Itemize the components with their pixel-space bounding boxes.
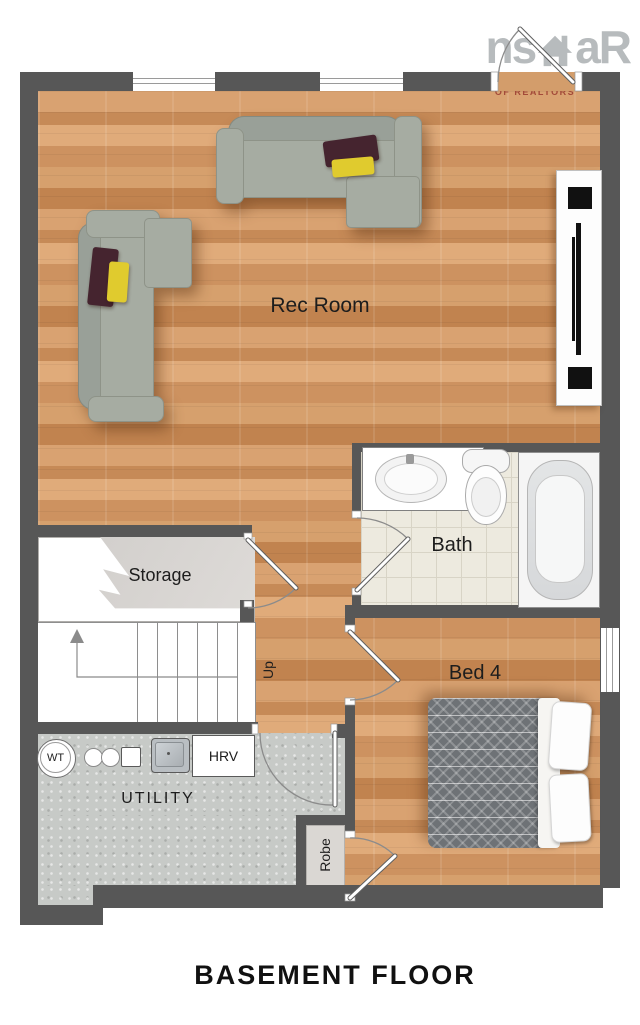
tv-unit: [556, 170, 602, 406]
bath-label: Bath: [402, 534, 502, 557]
logo-text-ar: aR: [575, 24, 630, 70]
wall-utility-north: [20, 722, 258, 734]
sofa-left: [72, 206, 194, 422]
storage-label: Storage: [95, 565, 225, 586]
water-tank-label: WT: [40, 742, 71, 773]
wall-robe-west: [296, 815, 306, 888]
utility-square-fixture: [121, 747, 141, 767]
sofa-top-arm-left: [216, 128, 244, 204]
sofa-left-pillow-yellow: [107, 261, 130, 302]
utility-sink: [151, 738, 190, 773]
wall-bath-west-upper: [352, 443, 361, 518]
window-top-right: [320, 72, 403, 91]
bed-pillow-bottom: [548, 773, 592, 843]
up-label: Up: [260, 648, 276, 692]
floor-plan-canvas: ns aR NOVA SCOTIA ASSOCIATION OF REALTOR…: [0, 0, 640, 1025]
water-tank: WT: [37, 739, 76, 778]
tv-screen: [576, 223, 581, 355]
utility-label: UTILITY: [78, 790, 238, 808]
tv-speaker-bottom: [568, 367, 592, 389]
bathtub: [518, 452, 600, 608]
staircase: [38, 622, 256, 722]
wall-right: [600, 72, 620, 888]
tv-speaker-top: [568, 187, 592, 209]
wall-bottom-main: [103, 885, 603, 908]
bed: [428, 698, 588, 848]
bath-sink: [375, 455, 447, 503]
wall-storage-north: [20, 525, 252, 537]
sofa-left-chaise: [144, 218, 192, 288]
window-top-left: [133, 72, 215, 91]
wall-bed-west-b: [345, 700, 355, 838]
bed-duvet: [428, 698, 548, 848]
window-bed4: [601, 628, 619, 692]
rec-room-label: Rec Room: [230, 294, 410, 318]
hrv-label: HRV: [209, 748, 238, 764]
wall-left: [20, 72, 38, 908]
sofa-left-arm-bottom: [88, 396, 164, 422]
tv-screen-edge: [572, 237, 575, 341]
robe-label: Robe: [317, 833, 333, 877]
wall-storage-stub: [240, 600, 254, 622]
plan-title: BASEMENT FLOOR: [70, 960, 600, 991]
entry-door-opening: [497, 72, 577, 91]
wall-bed-west-a: [345, 612, 355, 632]
wall-utility-stub: [332, 724, 355, 738]
sofa-top: [210, 110, 425, 232]
bed4-label: Bed 4: [415, 662, 535, 685]
wall-robe-north: [296, 815, 345, 825]
logo-house-icon: [536, 32, 574, 68]
bath-faucet-icon: [406, 454, 414, 464]
sofa-top-chaise: [346, 176, 420, 228]
logo-text-ns: ns: [486, 24, 536, 70]
bed-pillow-top: [548, 701, 593, 772]
wall-bottom-left-deep: [20, 905, 103, 925]
hrv-unit: HRV: [192, 735, 255, 777]
stair-treads: [137, 623, 256, 723]
utility-floor-lower: [38, 815, 296, 888]
sofa-top-pillow-yellow: [331, 156, 374, 178]
toilet: [462, 449, 510, 525]
utility-circle-fixture-2: [101, 748, 120, 767]
